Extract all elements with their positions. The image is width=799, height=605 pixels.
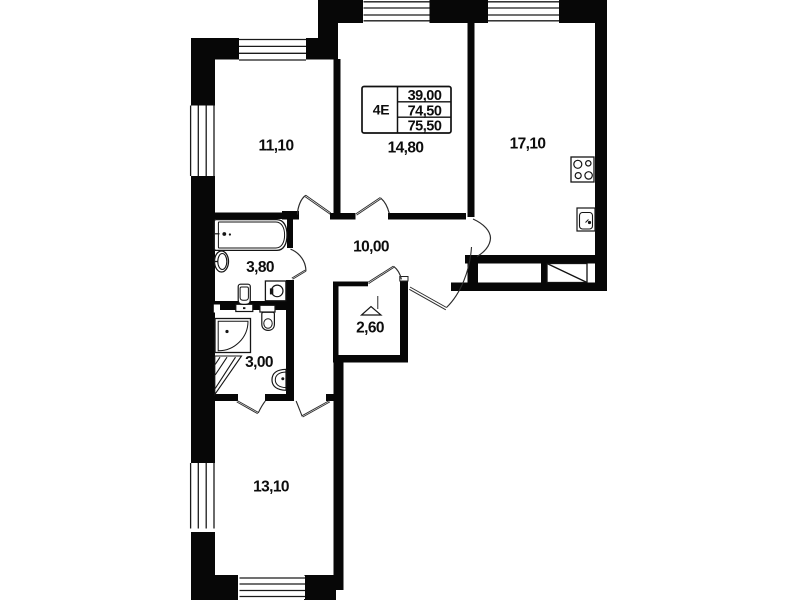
svg-text:3,00: 3,00 xyxy=(245,354,273,371)
svg-text:74,50: 74,50 xyxy=(408,103,442,119)
svg-text:10,00: 10,00 xyxy=(353,239,389,256)
svg-text:13,10: 13,10 xyxy=(253,479,289,496)
svg-text:2,60: 2,60 xyxy=(356,320,384,337)
svg-text:75,50: 75,50 xyxy=(408,119,442,135)
svg-text:4Е: 4Е xyxy=(373,102,390,118)
svg-text:39,00: 39,00 xyxy=(408,88,442,104)
svg-text:3,80: 3,80 xyxy=(246,259,274,276)
svg-text:11,10: 11,10 xyxy=(259,138,294,155)
svg-text:17,10: 17,10 xyxy=(510,136,546,153)
svg-text:14,80: 14,80 xyxy=(388,140,424,157)
